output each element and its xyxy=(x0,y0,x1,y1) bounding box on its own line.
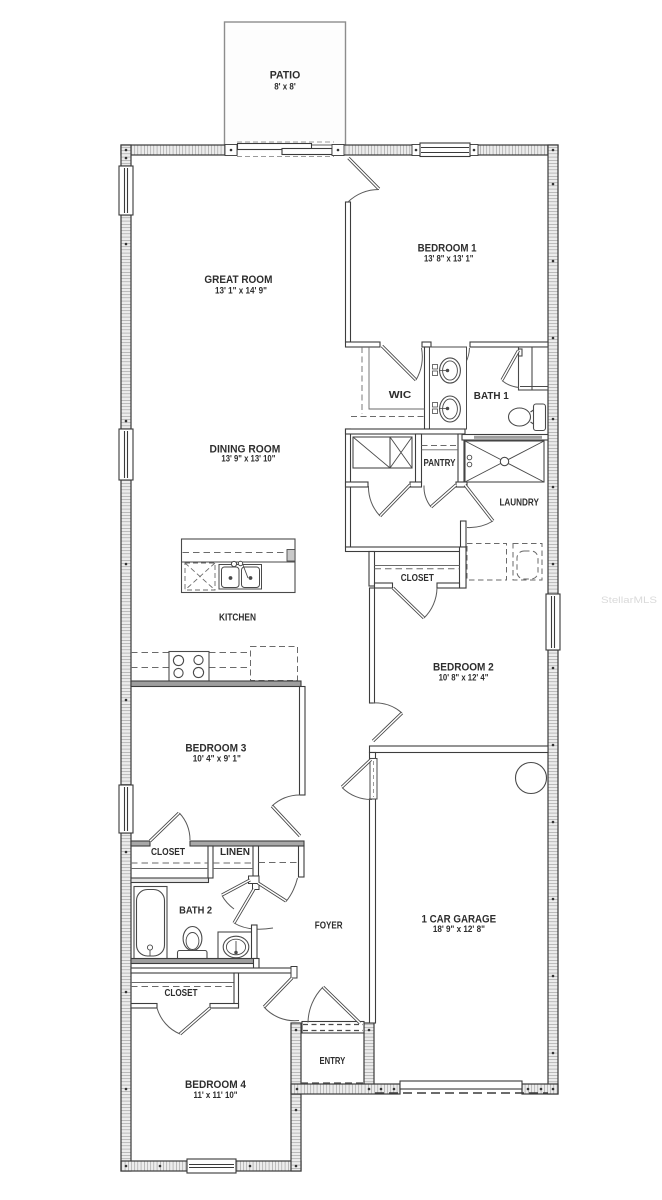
svg-text:10' 4" x 9' 1": 10' 4" x 9' 1" xyxy=(193,753,241,763)
svg-text:BATH 2: BATH 2 xyxy=(179,906,213,917)
svg-text:18' 9" x 12' 8": 18' 9" x 12' 8" xyxy=(433,924,485,934)
svg-text:GREAT ROOM: GREAT ROOM xyxy=(204,274,272,286)
svg-text:13' 1" x 14' 9": 13' 1" x 14' 9" xyxy=(215,286,267,296)
svg-text:13' 8" x 13' 1": 13' 8" x 13' 1" xyxy=(424,253,474,263)
svg-text:CLOSET: CLOSET xyxy=(151,847,185,858)
svg-text:13' 9" x 13' 10": 13' 9" x 13' 10" xyxy=(221,454,275,464)
svg-text:KITCHEN: KITCHEN xyxy=(219,613,256,624)
svg-text:LAUNDRY: LAUNDRY xyxy=(499,497,539,508)
svg-text:ENTRY: ENTRY xyxy=(320,1056,346,1067)
svg-text:10' 8" x 12' 4": 10' 8" x 12' 4" xyxy=(439,673,489,683)
svg-text:8' x 8': 8' x 8' xyxy=(274,81,296,91)
svg-text:PATIO: PATIO xyxy=(270,69,301,81)
svg-text:CLOSET: CLOSET xyxy=(401,573,434,584)
svg-text:PANTRY: PANTRY xyxy=(424,458,456,469)
svg-text:BATH 1: BATH 1 xyxy=(474,391,510,402)
svg-text:WIC: WIC xyxy=(389,390,412,401)
svg-text:FOYER: FOYER xyxy=(315,921,343,932)
svg-text:LINEN: LINEN xyxy=(220,847,250,858)
svg-text:11' x 11' 10": 11' x 11' 10" xyxy=(194,1090,238,1100)
svg-text:StellarMLS: StellarMLS xyxy=(601,595,657,606)
svg-text:CLOSET: CLOSET xyxy=(165,988,198,999)
